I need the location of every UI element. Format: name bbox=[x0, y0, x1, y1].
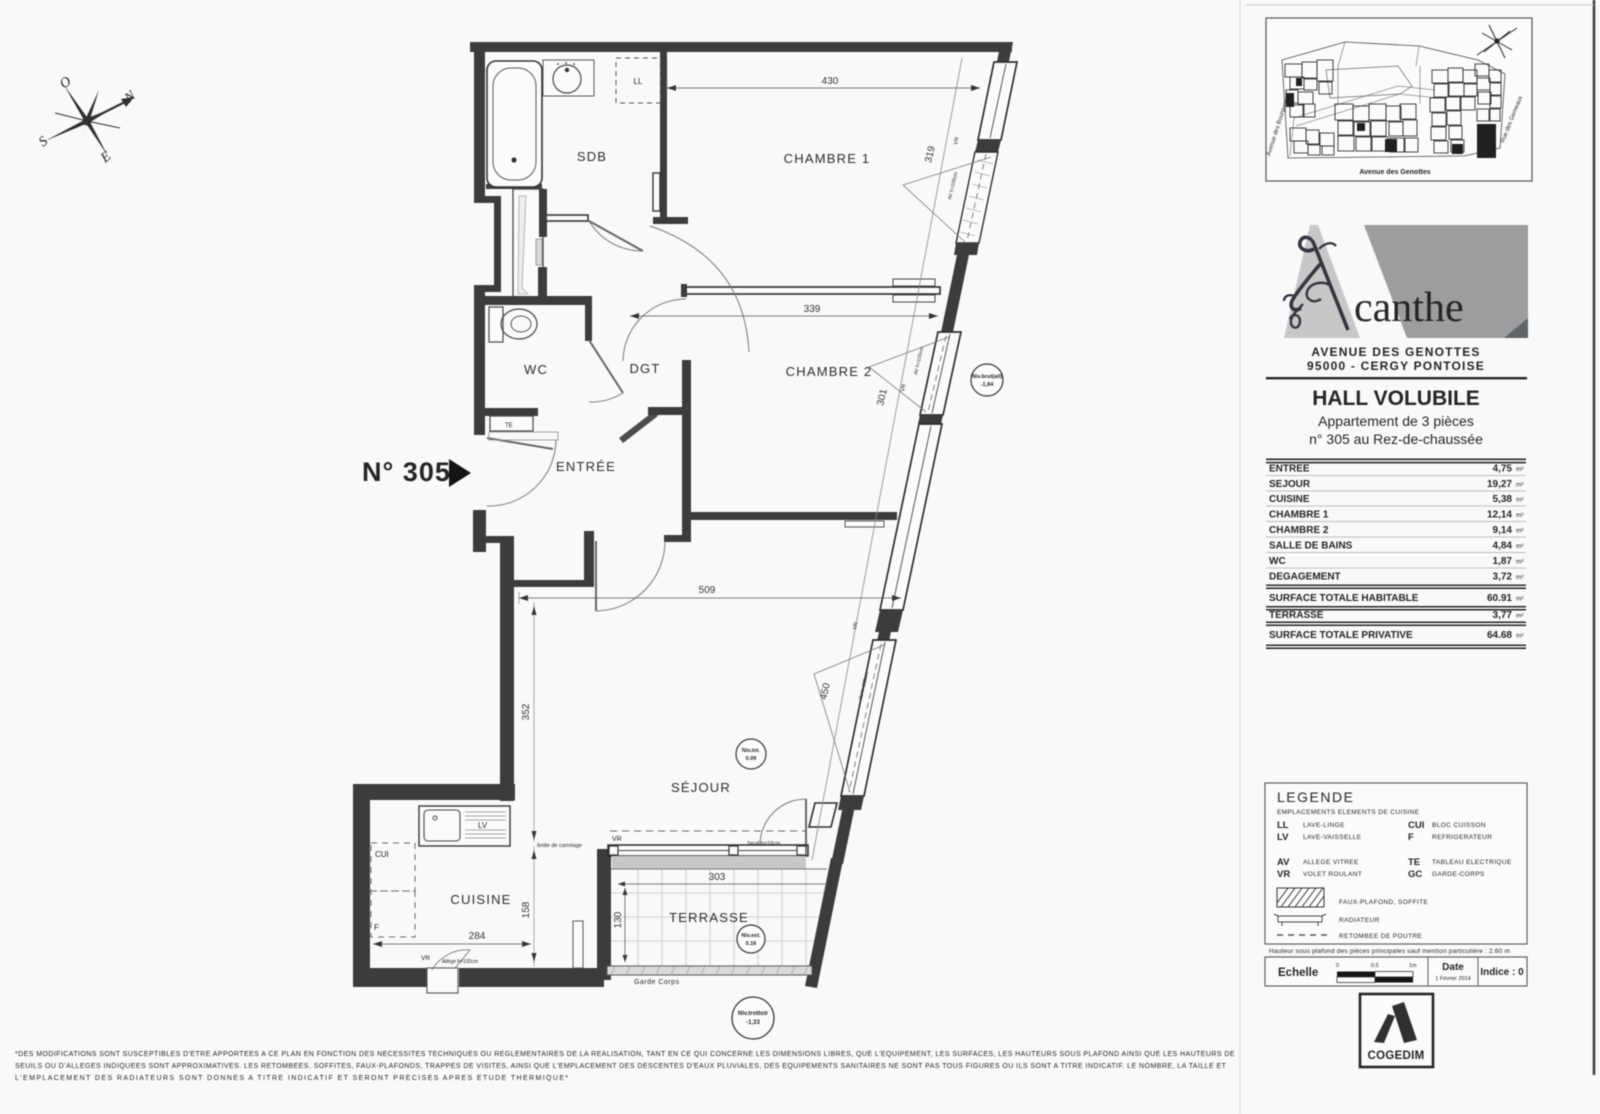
svg-text:HALL VOLUBILE: HALL VOLUBILE bbox=[1312, 387, 1480, 410]
svg-text:19,27: 19,27 bbox=[1487, 479, 1512, 490]
svg-text:ENTREE: ENTREE bbox=[1269, 464, 1310, 475]
svg-text:VR: VR bbox=[421, 955, 430, 962]
svg-text:Niv.int.: Niv.int. bbox=[742, 748, 760, 754]
svg-text:SURFACE TOTALE HABITABLE: SURFACE TOTALE HABITABLE bbox=[1269, 593, 1419, 604]
svg-text:SEUILS OU D'ALLEGES INDIQUEES: SEUILS OU D'ALLEGES INDIQUEES SONT APPRO… bbox=[15, 1063, 1227, 1070]
svg-text:Niv.trottoir: Niv.trottoir bbox=[738, 1011, 769, 1017]
svg-text:F: F bbox=[1408, 832, 1414, 843]
svg-text:1m: 1m bbox=[1409, 963, 1417, 969]
svg-text:m²: m² bbox=[1516, 633, 1524, 640]
svg-text:Avenue des Genottes: Avenue des Genottes bbox=[1359, 169, 1430, 176]
svg-text:TERRASSE: TERRASSE bbox=[669, 910, 749, 925]
svg-text:Echelle: Echelle bbox=[1278, 967, 1318, 979]
svg-text:ALLEGE VITREE: ALLEGE VITREE bbox=[1303, 859, 1359, 866]
svg-text:4,84: 4,84 bbox=[1493, 541, 1513, 552]
svg-text:AVENUE DES GENOTTES: AVENUE DES GENOTTES bbox=[1311, 345, 1480, 359]
svg-text:LV: LV bbox=[478, 821, 488, 830]
svg-text:12,14: 12,14 bbox=[1487, 510, 1512, 521]
svg-text:0.5: 0.5 bbox=[1371, 963, 1379, 969]
svg-text:Niv.brut(ail): Niv.brut(ail) bbox=[972, 374, 1002, 380]
svg-text:REFRIGERATEUR: REFRIGERATEUR bbox=[1432, 834, 1492, 841]
svg-text:4,75: 4,75 bbox=[1493, 464, 1513, 475]
svg-text:AV: AV bbox=[1277, 857, 1290, 868]
svg-text:CUI: CUI bbox=[1408, 820, 1424, 831]
svg-text:m²: m² bbox=[1516, 574, 1524, 581]
svg-text:m²: m² bbox=[1516, 528, 1524, 535]
svg-text:CHAMBRE 1: CHAMBRE 1 bbox=[784, 151, 871, 166]
svg-text:m²: m² bbox=[1516, 596, 1524, 603]
svg-text:RADIATEUR: RADIATEUR bbox=[1339, 917, 1380, 924]
svg-text:TERRASSE: TERRASSE bbox=[1269, 610, 1324, 621]
svg-text:60.91: 60.91 bbox=[1487, 593, 1512, 604]
svg-text:158: 158 bbox=[521, 901, 532, 918]
svg-text:canthe: canthe bbox=[1354, 285, 1464, 331]
svg-text:WC: WC bbox=[524, 362, 548, 377]
svg-text:CUISINE: CUISINE bbox=[450, 892, 511, 907]
svg-text:Indice : 0: Indice : 0 bbox=[1480, 967, 1524, 978]
svg-text:L'EMPLACEMENT DES RADIATEURS S: L'EMPLACEMENT DES RADIATEURS SONT DONNES… bbox=[15, 1075, 570, 1082]
svg-text:limite de carrelage: limite de carrelage bbox=[537, 843, 582, 849]
svg-text:64.68: 64.68 bbox=[1487, 630, 1512, 641]
svg-text:3,77: 3,77 bbox=[1493, 610, 1513, 621]
svg-text:TE: TE bbox=[505, 423, 513, 429]
svg-text:VOLET ROULANT: VOLET ROULANT bbox=[1303, 871, 1362, 878]
svg-text:SDB: SDB bbox=[577, 149, 607, 164]
svg-text:m²: m² bbox=[1516, 497, 1524, 504]
svg-text:SÉJOUR: SÉJOUR bbox=[671, 780, 731, 795]
svg-text:m²: m² bbox=[1516, 466, 1524, 473]
svg-text:WC: WC bbox=[1269, 556, 1286, 567]
svg-text:CUISINE: CUISINE bbox=[1269, 494, 1310, 505]
svg-text:Garde Corps: Garde Corps bbox=[634, 979, 680, 986]
svg-text:Allège h=100cm: Allège h=100cm bbox=[442, 959, 478, 965]
svg-text:N° 305: N° 305 bbox=[362, 457, 451, 487]
svg-text:284: 284 bbox=[469, 931, 486, 942]
svg-text:m²: m² bbox=[1516, 512, 1524, 519]
svg-text:Niv.ext.: Niv.ext. bbox=[741, 933, 761, 939]
svg-text:LAVE-LINGE: LAVE-LINGE bbox=[1303, 822, 1345, 829]
svg-text:430: 430 bbox=[822, 76, 839, 87]
svg-text:BLOC CUISSON: BLOC CUISSON bbox=[1432, 822, 1486, 829]
svg-text:m²: m² bbox=[1516, 559, 1524, 566]
svg-text:EMPLACEMENTS ELEMENTS DE CUISI: EMPLACEMENTS ELEMENTS DE CUISINE bbox=[1277, 809, 1420, 816]
svg-text:1 Février 2014: 1 Février 2014 bbox=[1435, 976, 1470, 982]
svg-text:0.09: 0.09 bbox=[746, 756, 757, 762]
svg-text:LL: LL bbox=[634, 77, 643, 86]
svg-text:CHAMBRE 1: CHAMBRE 1 bbox=[1269, 510, 1329, 521]
svg-text:VR: VR bbox=[612, 836, 622, 843]
svg-text:1,87: 1,87 bbox=[1493, 556, 1513, 567]
svg-text:LAVE-VAISSELLE: LAVE-VAISSELLE bbox=[1303, 834, 1362, 841]
svg-text:COGEDIM: COGEDIM bbox=[1367, 1050, 1424, 1062]
svg-text:TE: TE bbox=[1408, 857, 1420, 868]
svg-text:95000 - CERGY PONTOISE: 95000 - CERGY PONTOISE bbox=[1307, 359, 1485, 373]
svg-text:RETOMBEE DE POUTRE: RETOMBEE DE POUTRE bbox=[1339, 933, 1423, 940]
svg-text:SALLE DE BAINS: SALLE DE BAINS bbox=[1269, 541, 1353, 552]
svg-text:-1,33: -1,33 bbox=[746, 1020, 760, 1026]
svg-text:Seuil h=16cm: Seuil h=16cm bbox=[747, 841, 781, 847]
svg-text:GC: GC bbox=[1408, 869, 1422, 880]
svg-text:-1,84: -1,84 bbox=[981, 382, 994, 388]
svg-text:DEGAGEMENT: DEGAGEMENT bbox=[1269, 572, 1341, 583]
svg-text:m²: m² bbox=[1516, 482, 1524, 489]
svg-text:FAUX-PLAFOND, SOFFITE: FAUX-PLAFOND, SOFFITE bbox=[1339, 899, 1429, 906]
svg-text:GARDE-CORPS: GARDE-CORPS bbox=[1432, 871, 1485, 878]
svg-text:ENTRÉE: ENTRÉE bbox=[556, 459, 616, 474]
svg-text:9,14: 9,14 bbox=[1493, 525, 1513, 536]
svg-text:Appartement de 3 pièces: Appartement de 3 pièces bbox=[1318, 413, 1474, 429]
svg-text:3,72: 3,72 bbox=[1493, 572, 1513, 583]
svg-text:130: 130 bbox=[613, 911, 624, 928]
svg-text:VR: VR bbox=[1277, 869, 1290, 880]
svg-text:TABLEAU ELECTRIQUE: TABLEAU ELECTRIQUE bbox=[1432, 859, 1512, 866]
svg-text:*DES MODIFICATIONS SONT SUSCEP: *DES MODIFICATIONS SONT SUSCEPTIBLES D'E… bbox=[15, 1051, 1235, 1058]
svg-text:F: F bbox=[374, 923, 379, 932]
svg-text:0.16: 0.16 bbox=[746, 941, 757, 947]
svg-text:5,38: 5,38 bbox=[1493, 494, 1513, 505]
svg-text:SEJOUR: SEJOUR bbox=[1269, 479, 1311, 490]
svg-text:n° 305 au Rez-de-chaussée: n° 305 au Rez-de-chaussée bbox=[1309, 431, 1483, 447]
svg-text:Hauteur sous plafond des pièce: Hauteur sous plafond des pièces principa… bbox=[1269, 948, 1510, 955]
svg-text:339: 339 bbox=[804, 304, 821, 315]
svg-text:m²: m² bbox=[1516, 613, 1524, 620]
svg-text:0: 0 bbox=[1336, 963, 1339, 969]
svg-text:CHAMBRE 2: CHAMBRE 2 bbox=[786, 364, 873, 379]
svg-text:CUI: CUI bbox=[375, 850, 389, 859]
svg-text:LV: LV bbox=[1277, 832, 1289, 843]
svg-text:LEGENDE: LEGENDE bbox=[1277, 789, 1354, 805]
svg-text:DGT: DGT bbox=[629, 361, 660, 376]
svg-text:SURFACE TOTALE PRIVATIVE: SURFACE TOTALE PRIVATIVE bbox=[1269, 630, 1413, 641]
svg-text:LL: LL bbox=[1277, 820, 1289, 831]
svg-text:CHAMBRE 2: CHAMBRE 2 bbox=[1269, 525, 1329, 536]
svg-text:303: 303 bbox=[709, 872, 726, 883]
svg-text:Date: Date bbox=[1442, 962, 1464, 973]
svg-text:352: 352 bbox=[521, 703, 532, 720]
svg-text:m²: m² bbox=[1516, 543, 1524, 550]
svg-text:509: 509 bbox=[699, 585, 716, 596]
